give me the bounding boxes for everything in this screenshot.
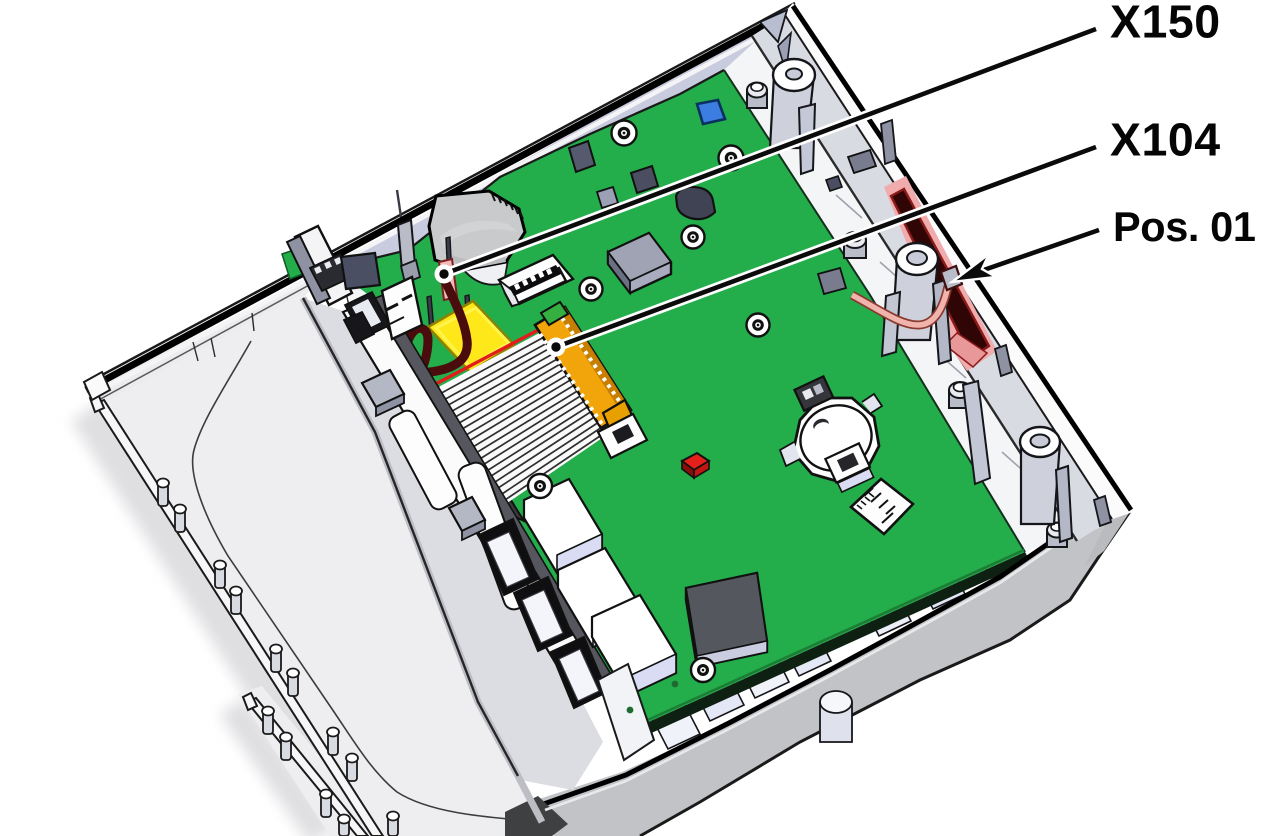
svg-text:X150: X150 <box>1110 0 1221 48</box>
svg-text:X104: X104 <box>1110 114 1221 166</box>
svg-text:Pos. 01: Pos. 01 <box>1113 203 1256 250</box>
